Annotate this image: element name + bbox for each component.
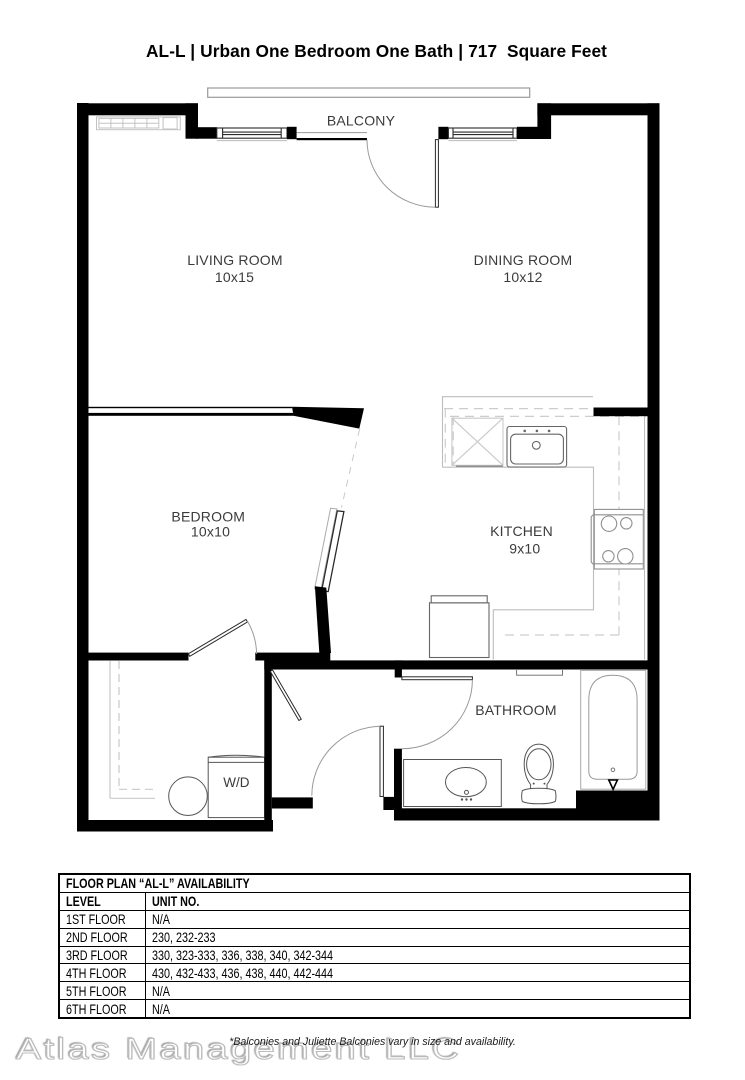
- svg-text:DINING ROOM: DINING ROOM: [474, 252, 573, 268]
- svg-text:W/D: W/D: [223, 775, 249, 790]
- svg-text:BEDROOM: BEDROOM: [171, 508, 245, 524]
- svg-text:10x10: 10x10: [191, 524, 230, 540]
- svg-text:LIVING ROOM: LIVING ROOM: [187, 252, 283, 268]
- svg-text:10x15: 10x15: [215, 269, 254, 285]
- svg-text:10x12: 10x12: [503, 269, 542, 285]
- svg-text:BALCONY: BALCONY: [327, 113, 396, 129]
- svg-text:KITCHEN: KITCHEN: [490, 523, 553, 539]
- svg-text:BATHROOM: BATHROOM: [475, 702, 556, 718]
- svg-text:9x10: 9x10: [509, 541, 540, 557]
